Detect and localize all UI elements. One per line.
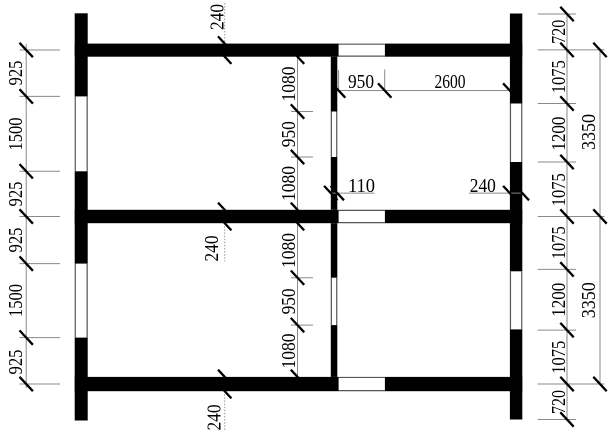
- svg-text:925: 925: [5, 228, 27, 253]
- svg-text:925: 925: [5, 182, 27, 207]
- svg-text:720: 720: [548, 20, 570, 44]
- svg-text:1075: 1075: [548, 60, 570, 93]
- svg-text:1500: 1500: [5, 284, 27, 317]
- svg-text:240: 240: [207, 4, 229, 30]
- svg-text:1080: 1080: [278, 67, 300, 102]
- svg-text:3350: 3350: [578, 282, 600, 318]
- svg-text:240: 240: [470, 175, 496, 197]
- svg-text:925: 925: [5, 61, 27, 86]
- svg-text:720: 720: [548, 390, 570, 414]
- svg-text:3350: 3350: [578, 114, 600, 150]
- svg-text:1200: 1200: [548, 283, 570, 317]
- svg-text:950: 950: [278, 121, 300, 147]
- svg-text:950: 950: [278, 288, 300, 314]
- svg-text:1075: 1075: [548, 173, 570, 206]
- svg-text:240: 240: [201, 236, 223, 262]
- svg-text:110: 110: [348, 175, 375, 197]
- svg-text:925: 925: [5, 350, 27, 375]
- svg-text:1080: 1080: [278, 233, 300, 268]
- svg-text:2600: 2600: [435, 71, 466, 93]
- svg-text:1200: 1200: [548, 117, 570, 151]
- svg-text:1080: 1080: [278, 334, 300, 369]
- svg-text:1080: 1080: [278, 166, 300, 201]
- svg-text:1075: 1075: [548, 341, 570, 374]
- svg-text:1075: 1075: [548, 226, 570, 259]
- svg-text:950: 950: [348, 71, 374, 93]
- svg-text:240: 240: [204, 405, 226, 431]
- svg-text:1500: 1500: [5, 118, 27, 151]
